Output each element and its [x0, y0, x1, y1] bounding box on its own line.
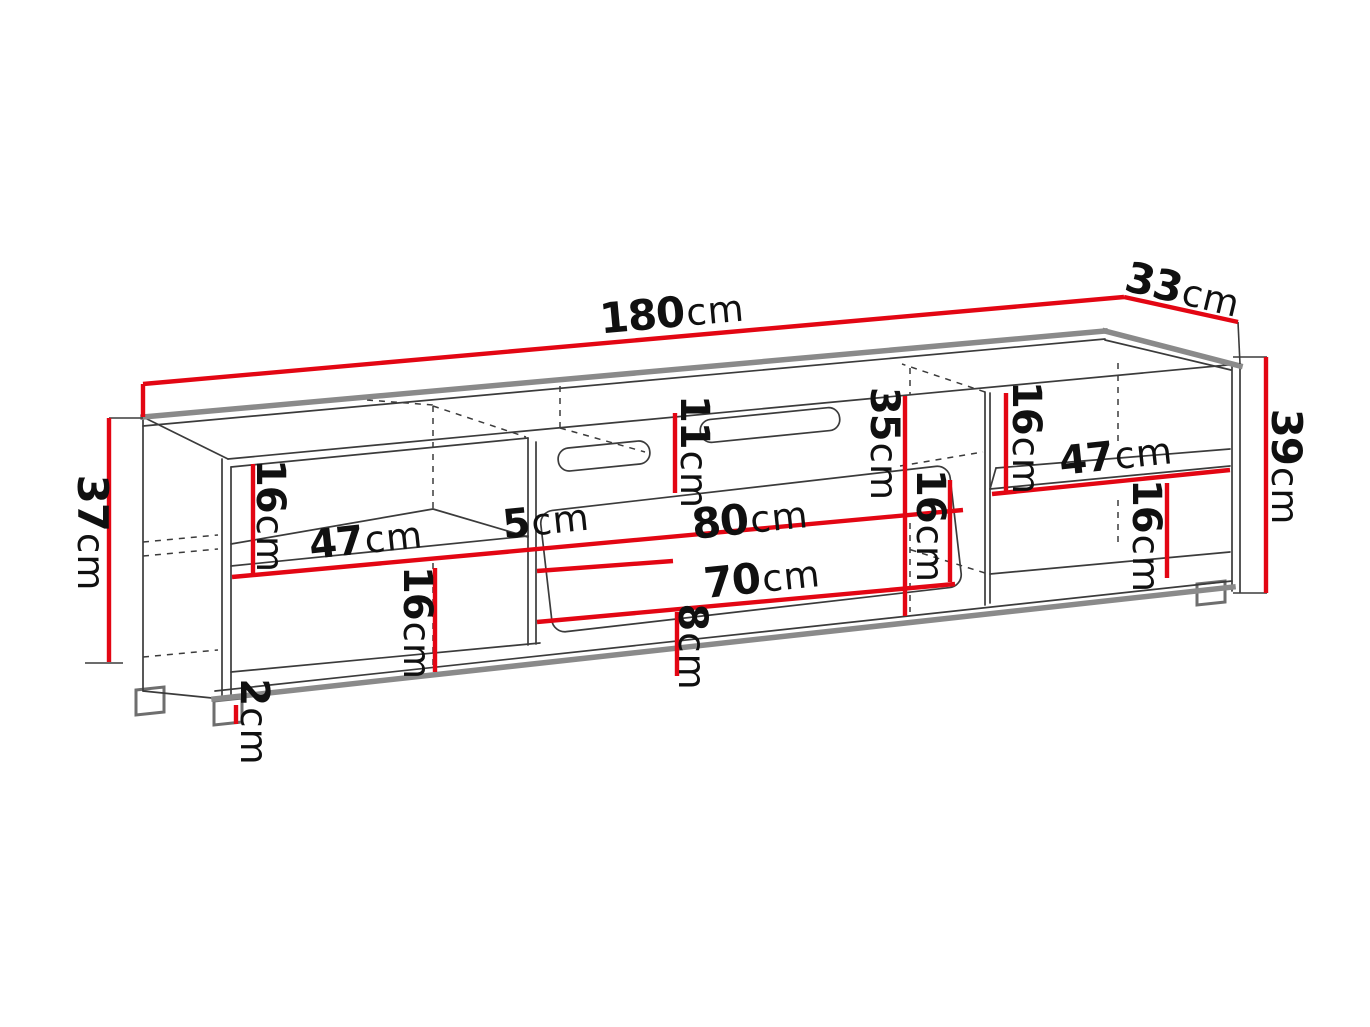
dim-left-upper-gap: 16cm: [250, 459, 290, 573]
dim-middle-gap: 16cm: [910, 469, 950, 583]
dim-right-lower-gap: 16cm: [1126, 479, 1166, 593]
dim-foot-height: 2cm: [234, 678, 274, 765]
dim-divider-width: 5cm: [501, 497, 592, 546]
dim-middle-height: 35cm: [864, 387, 904, 501]
dim-height-left: 37cm: [71, 475, 113, 592]
dim-door-bottom-gap: 8cm: [672, 603, 712, 690]
dimension-diagram: 180cm 33cm 37cm 39cm 16cm 47cm 16cm 2cm …: [0, 0, 1370, 1027]
dim-left-lower-gap: 16cm: [397, 566, 437, 680]
dim-height-right: 39cm: [1265, 409, 1307, 526]
handle-slot-left: [557, 440, 651, 472]
dim-right-upper-gap: 16cm: [1006, 381, 1046, 495]
dimline-short-mid: [537, 561, 673, 571]
dim-top-rail-height: 11cm: [674, 395, 714, 509]
